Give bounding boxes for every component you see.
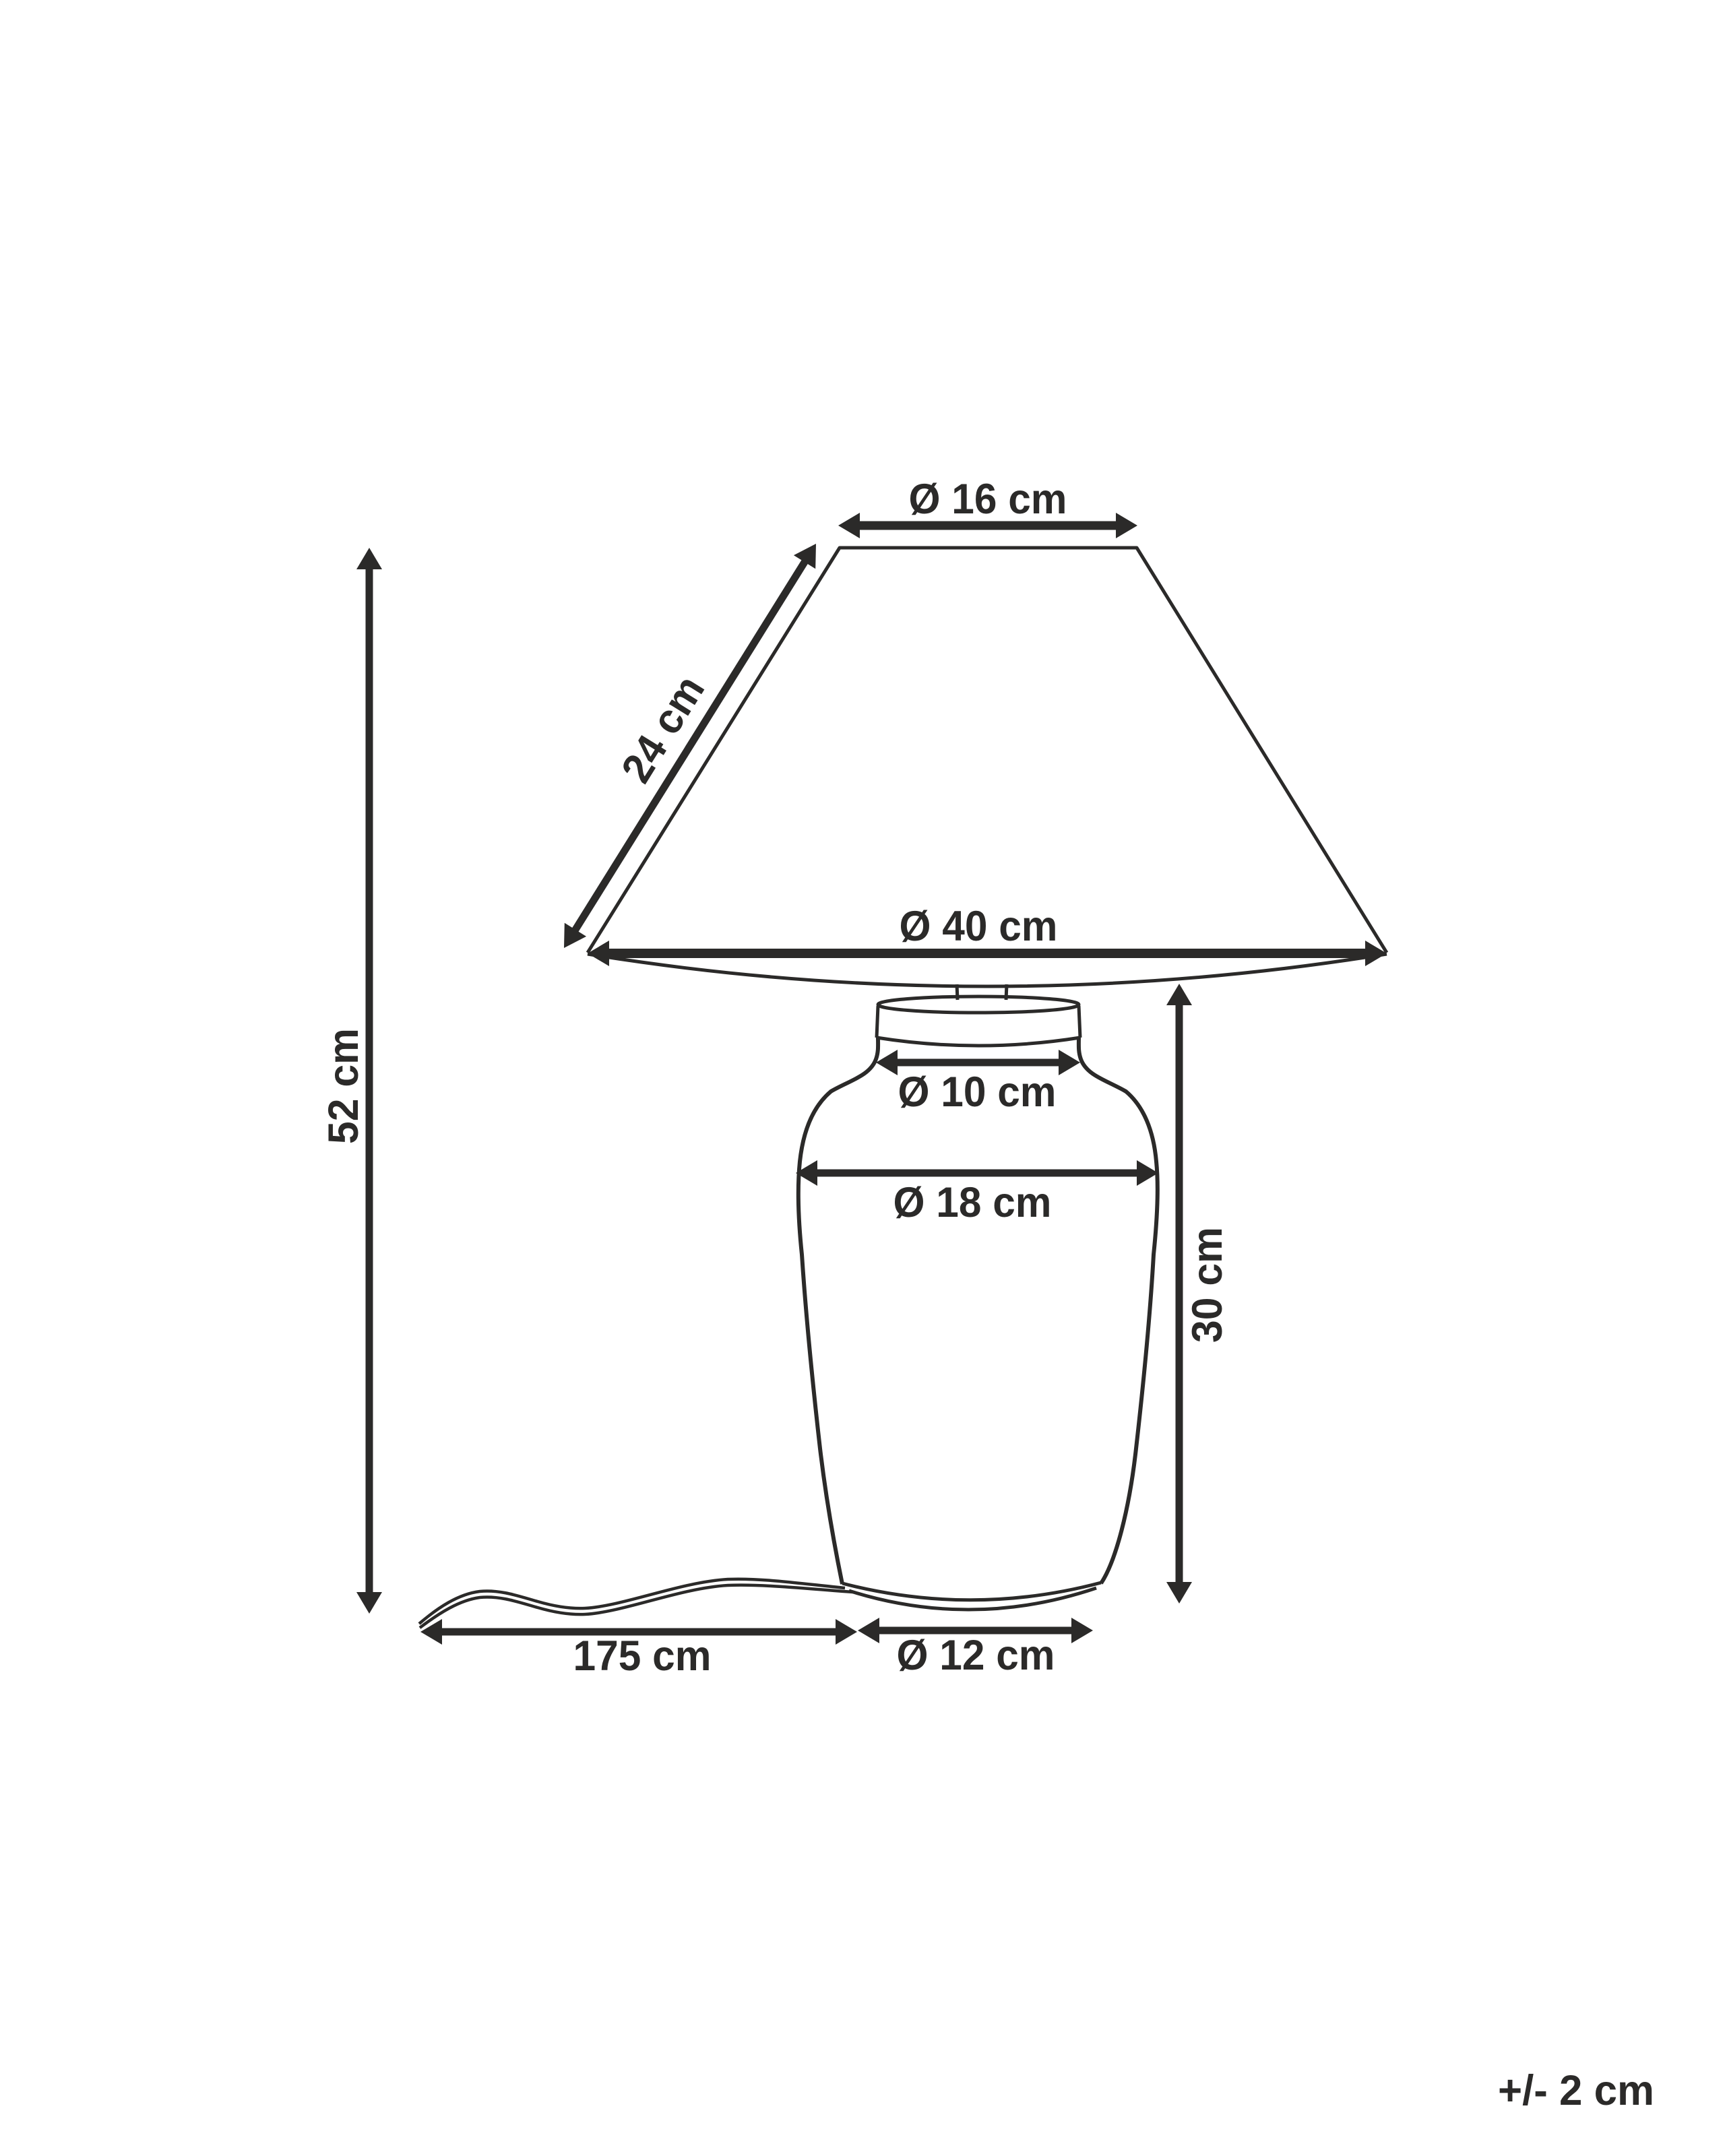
svg-text:Ø 40 cm: Ø 40 cm — [900, 903, 1058, 950]
svg-text:30 cm: 30 cm — [1184, 1227, 1231, 1343]
svg-text:+/- 2 cm: +/- 2 cm — [1498, 2067, 1654, 2114]
svg-text:Ø 12 cm: Ø 12 cm — [897, 1632, 1055, 1679]
svg-text:Ø 10 cm: Ø 10 cm — [898, 1069, 1057, 1116]
svg-text:Ø 18 cm: Ø 18 cm — [893, 1179, 1052, 1226]
svg-text:175 cm: 175 cm — [573, 1632, 712, 1680]
svg-text:52 cm: 52 cm — [320, 1028, 367, 1144]
svg-text:Ø 16 cm: Ø 16 cm — [909, 476, 1067, 523]
